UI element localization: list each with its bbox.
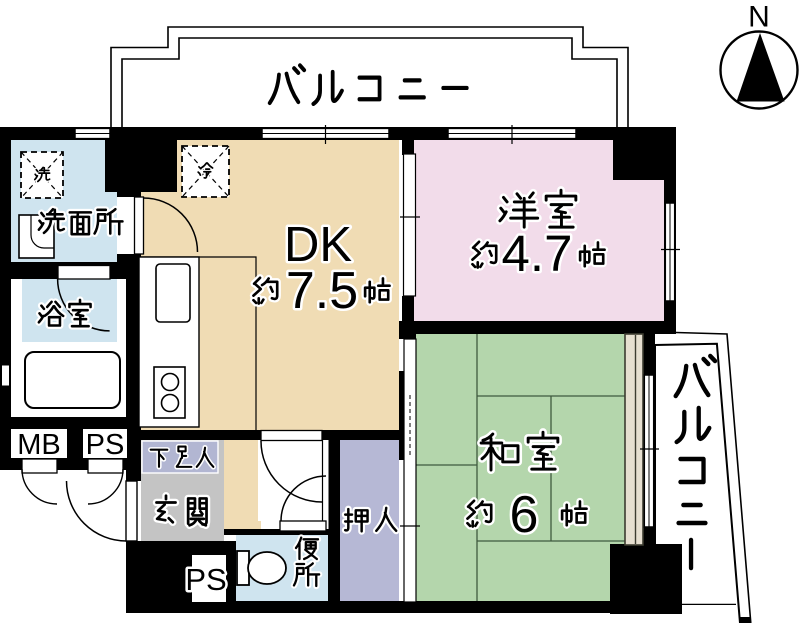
svg-text:4.7: 4.7: [502, 225, 573, 282]
svg-text:PS: PS: [185, 562, 226, 597]
svg-text:MB: MB: [17, 429, 61, 461]
svg-text:N: N: [748, 1, 770, 34]
svg-text:7.5: 7.5: [286, 262, 358, 320]
svg-text:6: 6: [510, 486, 539, 544]
svg-text:PS: PS: [86, 429, 125, 461]
